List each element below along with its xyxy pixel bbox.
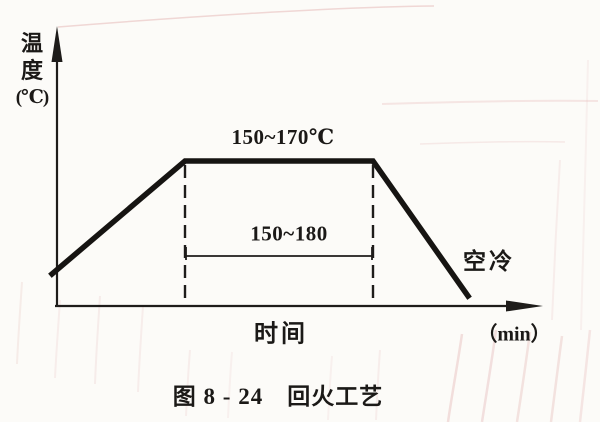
tempering-process-diagram (0, 0, 600, 422)
y-axis-unit: (℃) (16, 84, 48, 111)
y-axis-label-char: 温 (21, 30, 43, 57)
y-axis-label: 温 度 (℃) (4, 30, 60, 111)
scan-artifacts (17, 6, 598, 422)
x-axis-label: 时间 (254, 314, 308, 349)
hold-temperature-label: 150~170℃ (231, 124, 334, 150)
figure-caption: 图 8 - 24 回火工艺 (173, 377, 383, 411)
y-axis-label-char: 度 (21, 57, 43, 84)
figure-canvas: 温 度 (℃) 150~170℃ 150~180 空冷 时间 （min） 图 8… (0, 0, 600, 422)
x-axis-unit-label: （min） (477, 318, 550, 347)
hold-duration-dimension-line (186, 247, 372, 260)
hold-duration-label: 150~180 (250, 222, 327, 247)
x-axis-arrow-icon (506, 301, 543, 312)
air-cooling-label: 空冷 (463, 242, 515, 276)
